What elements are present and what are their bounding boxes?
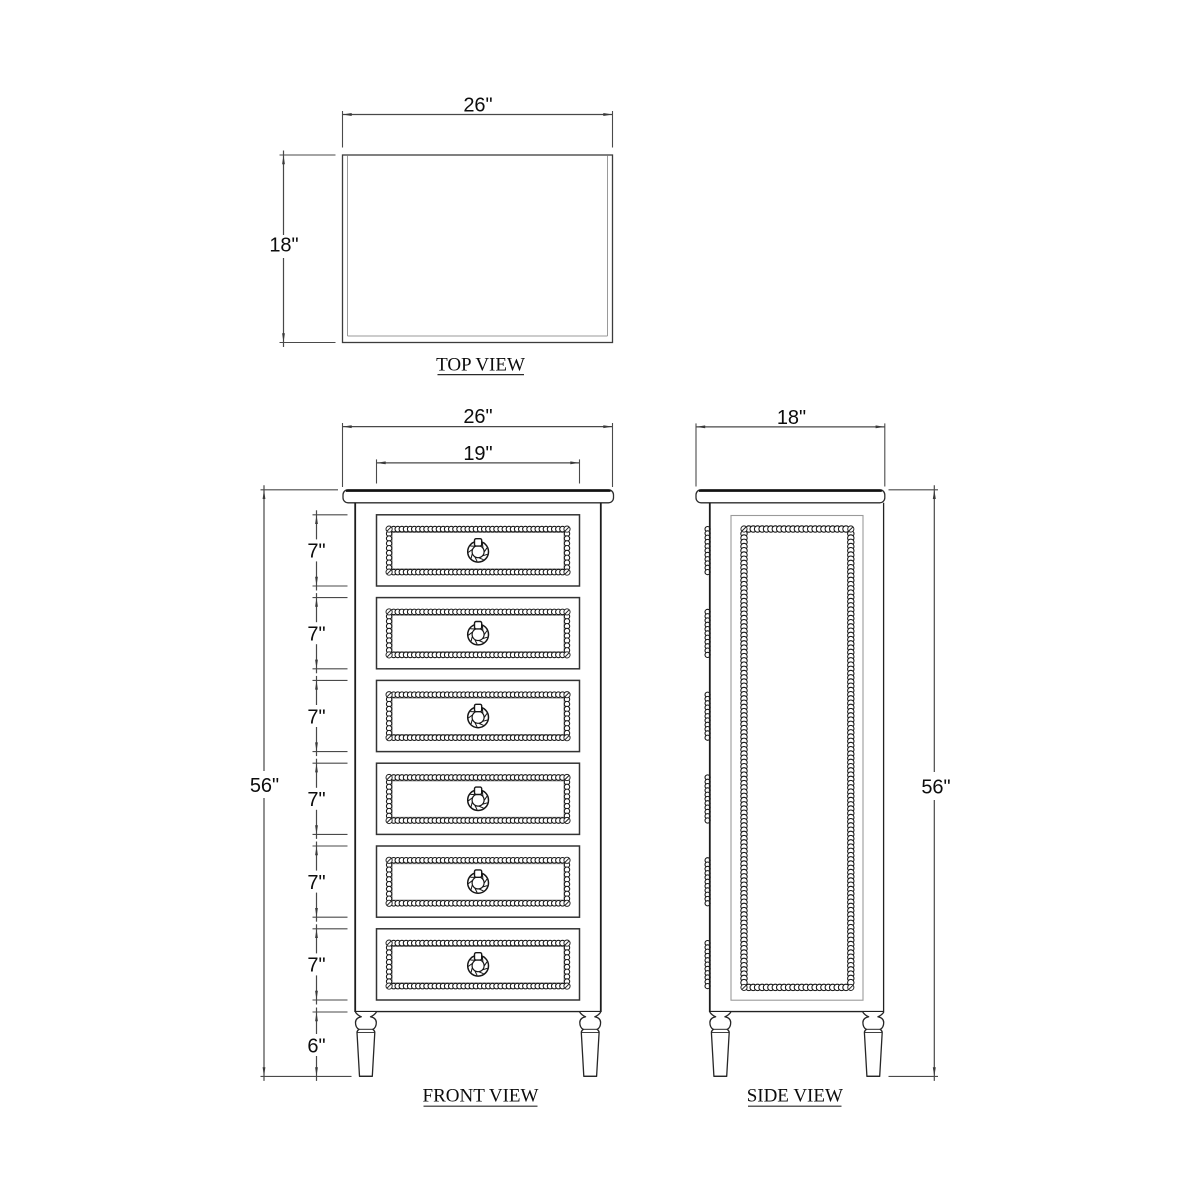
svg-text:26": 26" bbox=[463, 406, 492, 428]
svg-text:7": 7" bbox=[307, 624, 325, 646]
svg-text:6": 6" bbox=[307, 1035, 325, 1057]
svg-text:7": 7" bbox=[307, 706, 325, 728]
svg-text:7": 7" bbox=[307, 872, 325, 894]
svg-text:FRONT VIEW: FRONT VIEW bbox=[423, 1086, 539, 1107]
svg-text:56": 56" bbox=[250, 775, 279, 797]
svg-text:7": 7" bbox=[307, 541, 325, 563]
svg-text:SIDE VIEW: SIDE VIEW bbox=[747, 1086, 843, 1107]
svg-text:18": 18" bbox=[777, 407, 806, 429]
svg-text:56": 56" bbox=[921, 776, 950, 798]
svg-text:26": 26" bbox=[463, 94, 492, 116]
svg-text:7": 7" bbox=[307, 789, 325, 811]
svg-text:7": 7" bbox=[307, 955, 325, 977]
svg-text:18": 18" bbox=[269, 235, 298, 257]
svg-text:TOP VIEW: TOP VIEW bbox=[436, 354, 525, 375]
svg-text:19": 19" bbox=[463, 443, 492, 465]
